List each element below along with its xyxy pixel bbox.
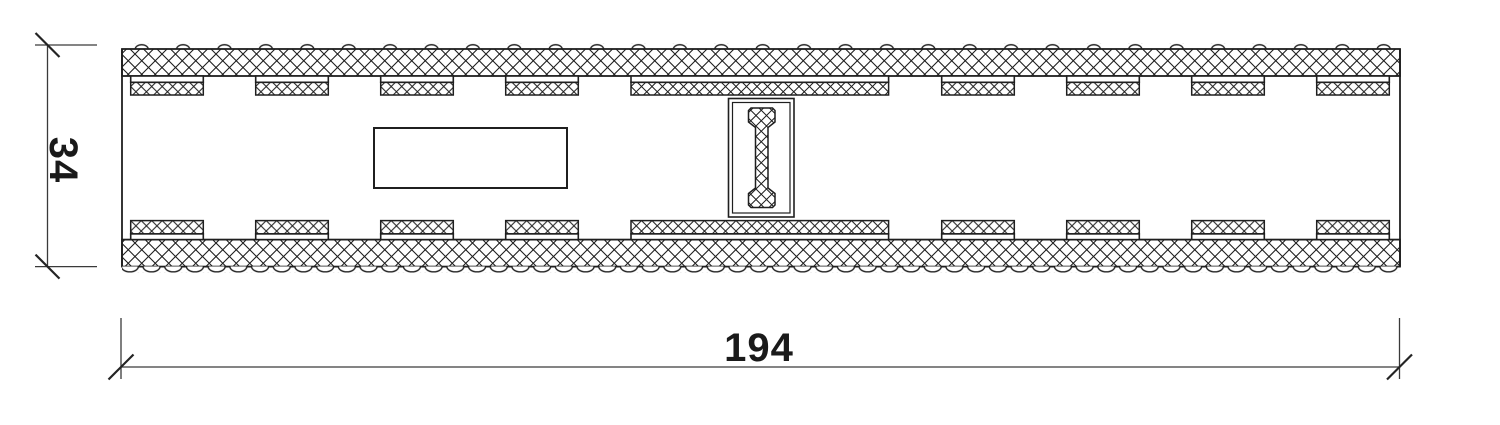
top-plate bbox=[122, 49, 1400, 76]
dimension-width: 194 bbox=[109, 318, 1413, 380]
panel-cross-section-drawing: 34 194 bbox=[0, 0, 1500, 425]
center-connector bbox=[729, 99, 795, 218]
height-dimension-label: 34 bbox=[41, 137, 85, 184]
dimension-height: 34 bbox=[35, 33, 97, 279]
bottom-pads bbox=[131, 221, 1390, 240]
bottom-scallops-row bbox=[122, 266, 1400, 272]
technical-drawing-canvas: 34 194 bbox=[0, 0, 1500, 425]
top-pads bbox=[131, 76, 1390, 95]
bottom-plate bbox=[122, 240, 1400, 267]
cavity-rectangle bbox=[374, 128, 567, 188]
width-dimension-label: 194 bbox=[724, 326, 794, 370]
